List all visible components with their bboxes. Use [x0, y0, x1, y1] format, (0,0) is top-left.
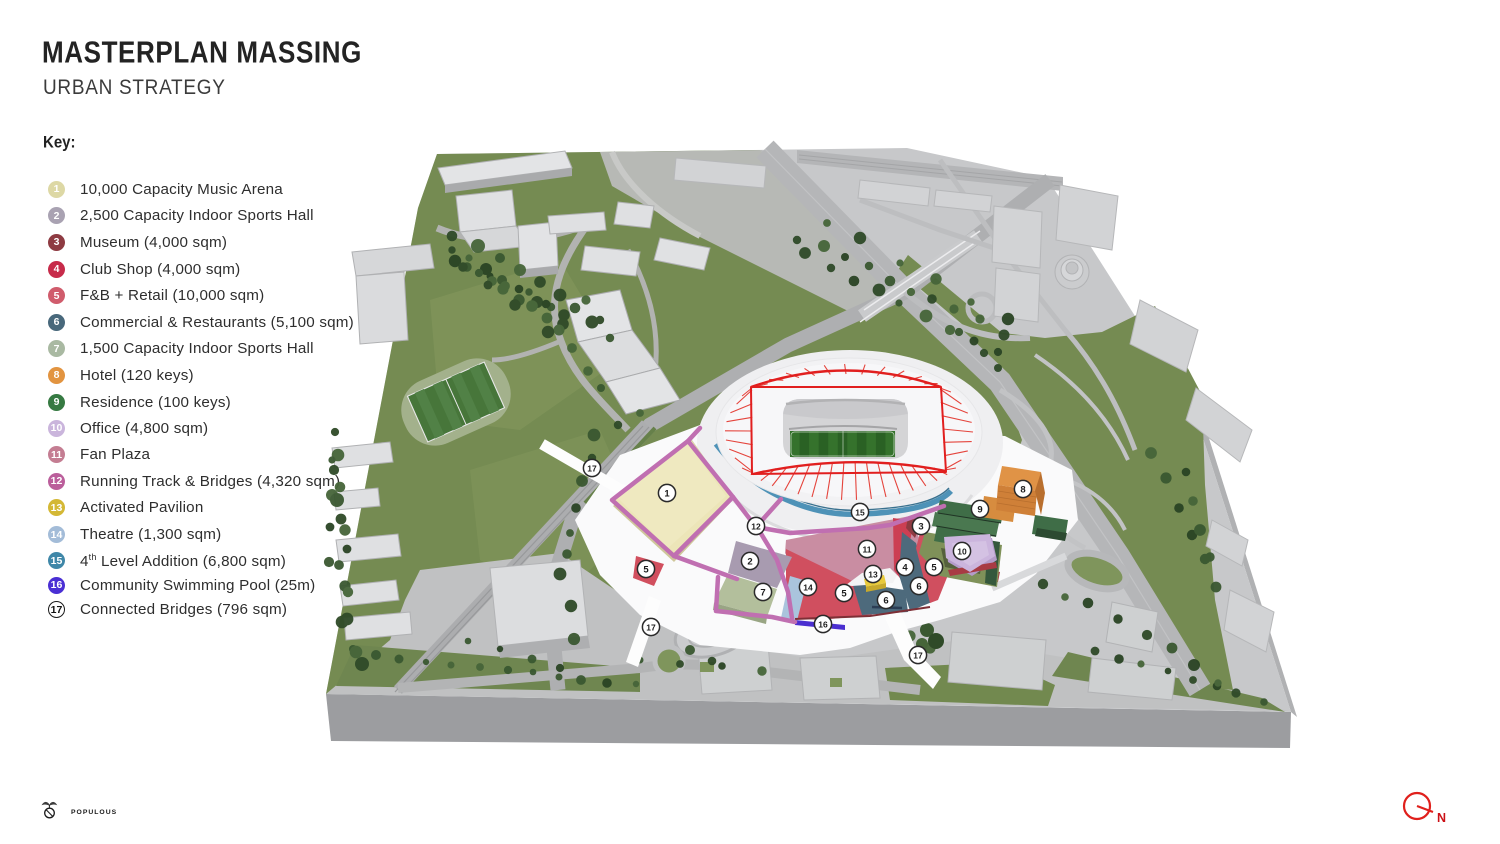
svg-text:5: 5	[931, 562, 937, 573]
svg-text:2: 2	[747, 556, 752, 567]
svg-text:5: 5	[643, 564, 649, 575]
svg-text:14: 14	[803, 582, 813, 592]
svg-text:3: 3	[918, 521, 923, 532]
svg-text:11: 11	[863, 544, 872, 554]
svg-text:1: 1	[664, 488, 670, 499]
svg-text:8: 8	[1020, 484, 1025, 495]
svg-text:5: 5	[841, 588, 847, 599]
svg-text:4: 4	[902, 562, 908, 573]
svg-text:12: 12	[751, 521, 761, 531]
svg-text:17: 17	[646, 622, 656, 632]
svg-text:15: 15	[855, 507, 865, 517]
svg-text:6: 6	[916, 581, 921, 592]
svg-text:13: 13	[868, 569, 878, 579]
svg-text:10: 10	[957, 546, 967, 556]
svg-text:17: 17	[587, 463, 597, 473]
svg-text:7: 7	[760, 587, 765, 598]
svg-text:N: N	[1437, 811, 1446, 825]
svg-text:17: 17	[913, 650, 923, 660]
svg-text:16: 16	[818, 619, 828, 629]
svg-text:6: 6	[883, 595, 888, 606]
svg-text:9: 9	[977, 504, 982, 515]
